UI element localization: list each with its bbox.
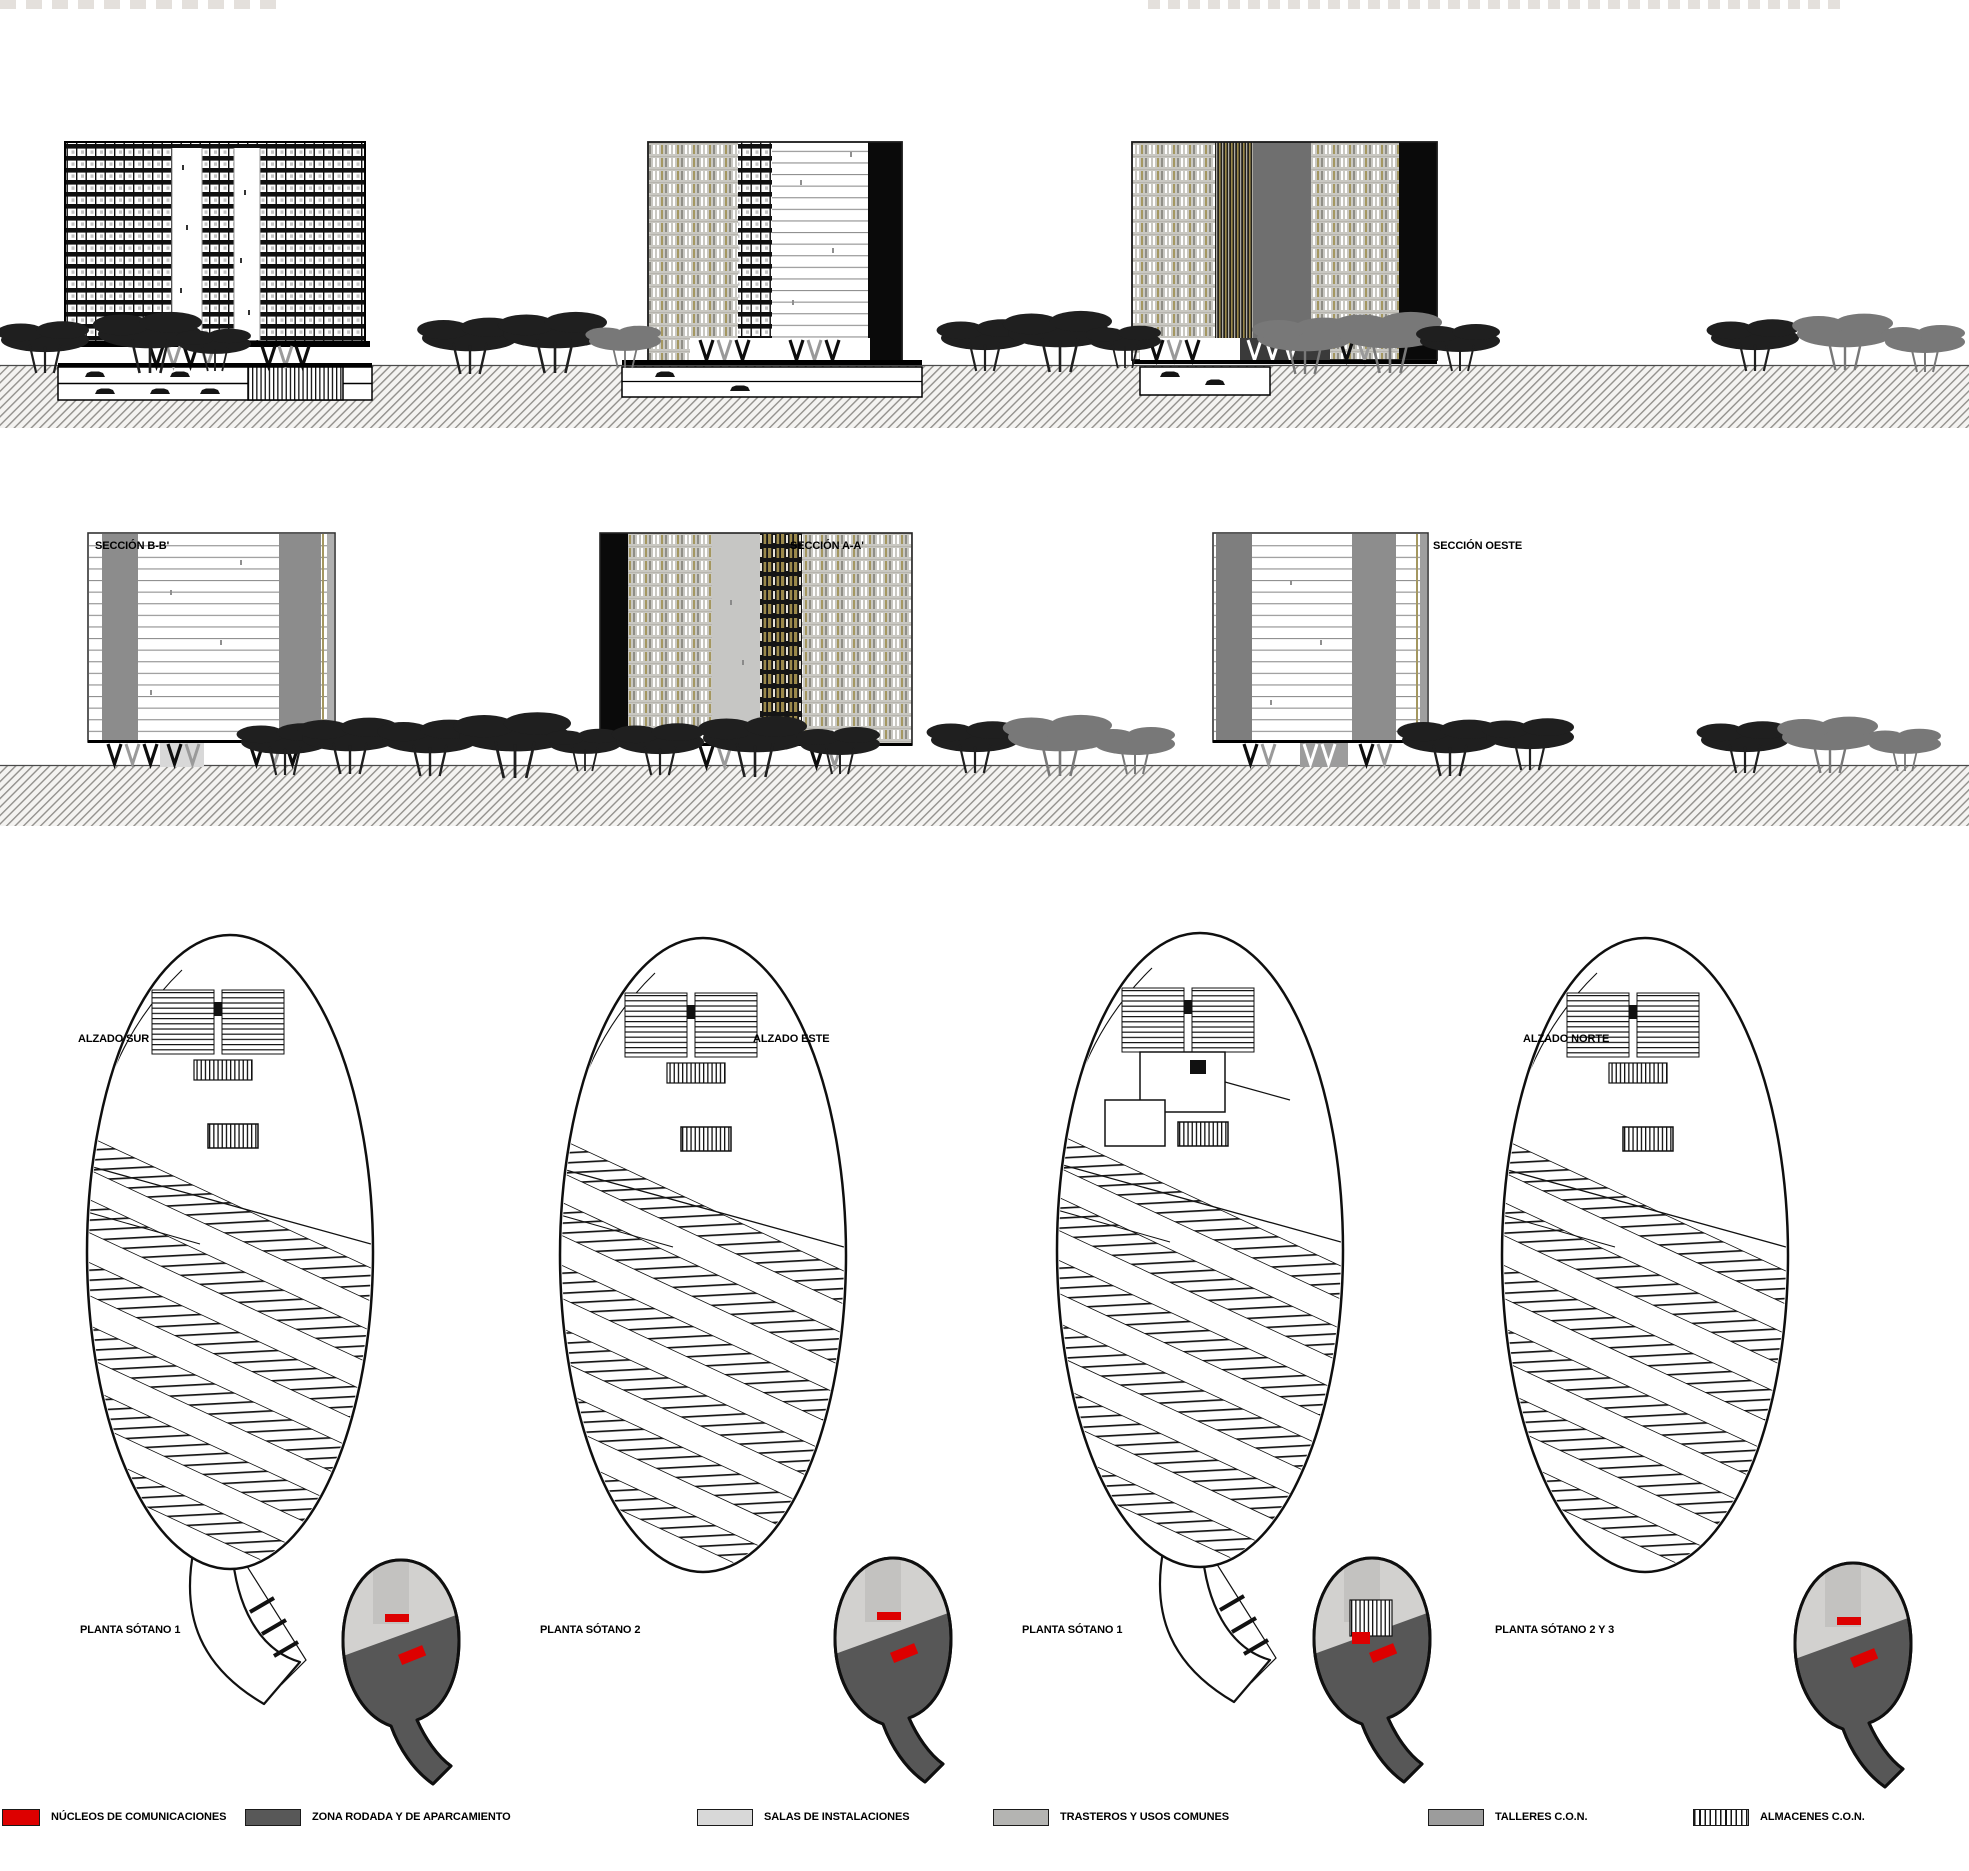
key-plan-4 [1795, 1555, 1911, 1787]
legend-item-nucleos: NÚCLEOS DE COMUNICACIONES [2, 1806, 226, 1828]
legend-swatch-trasteros [993, 1809, 1049, 1826]
label-seccion-oeste: SECCIÓN OESTE [1433, 540, 1522, 552]
drawing-sheet: SECCIÓN B-B' SECCIÓN A-A' SECCIÓN OESTE … [0, 0, 1969, 1871]
label-planta-sotano-1b: PLANTA SÓTANO 1 [1022, 1624, 1122, 1636]
architectural-drawings [0, 0, 1969, 1871]
legend-item-salas: SALAS DE INSTALACIONES [697, 1806, 910, 1828]
legend-swatch-almacenes [1693, 1809, 1749, 1826]
seccion-oeste-basement [1140, 367, 1270, 395]
label-seccion-aa: SECCIÓN A-A' [790, 540, 864, 552]
legend-swatch-nucleos [2, 1809, 40, 1826]
legend-item-zona-rodada: ZONA RODADA Y DE APARCAMIENTO [245, 1806, 511, 1828]
label-seccion-bb: SECCIÓN B-B' [95, 540, 169, 552]
seccion-aa-basement [622, 367, 922, 397]
legend-swatch-salas [697, 1809, 753, 1826]
legend-label-zona-rodada: ZONA RODADA Y DE APARCAMIENTO [312, 1811, 511, 1823]
label-alzado-este: ALZADO ESTE [753, 1033, 830, 1045]
row2-ground [0, 766, 1969, 827]
legend-label-talleres: TALLERES C.O.N. [1495, 1811, 1587, 1823]
legend-item-talleres: TALLERES C.O.N. [1428, 1806, 1587, 1828]
legend-label-nucleos: NÚCLEOS DE COMUNICACIONES [51, 1811, 226, 1823]
label-planta-sotano-2y3: PLANTA SÓTANO 2 Y 3 [1495, 1624, 1614, 1636]
key-plan-2 [835, 1550, 951, 1782]
seccion-aa-drawing [622, 142, 922, 365]
label-planta-sotano-2: PLANTA SÓTANO 2 [540, 1624, 640, 1636]
legend-label-almacenes: ALMACENES C.O.N. [1760, 1811, 1865, 1823]
label-alzado-norte: ALZADO NORTE [1523, 1033, 1609, 1045]
seccion-bb-basement [58, 367, 372, 400]
alzado-norte-drawing [1213, 533, 1428, 767]
legend-label-salas: SALAS DE INSTALACIONES [764, 1811, 910, 1823]
legend-item-almacenes: ALMACENES C.O.N. [1693, 1806, 1865, 1828]
key-plan-1 [343, 1552, 459, 1784]
legend-label-trasteros: TRASTEROS Y USOS COMUNES [1060, 1811, 1229, 1823]
legend-item-trasteros: TRASTEROS Y USOS COMUNES [993, 1806, 1229, 1828]
label-planta-sotano-1a: PLANTA SÓTANO 1 [80, 1624, 180, 1636]
legend-swatch-talleres [1428, 1809, 1484, 1826]
key-plan-3 [1314, 1550, 1430, 1782]
label-alzado-sur: ALZADO SUR [78, 1033, 149, 1045]
planta-sotano-2-drawing [364, 938, 949, 1602]
legend-swatch-zona-rodada [245, 1809, 301, 1826]
